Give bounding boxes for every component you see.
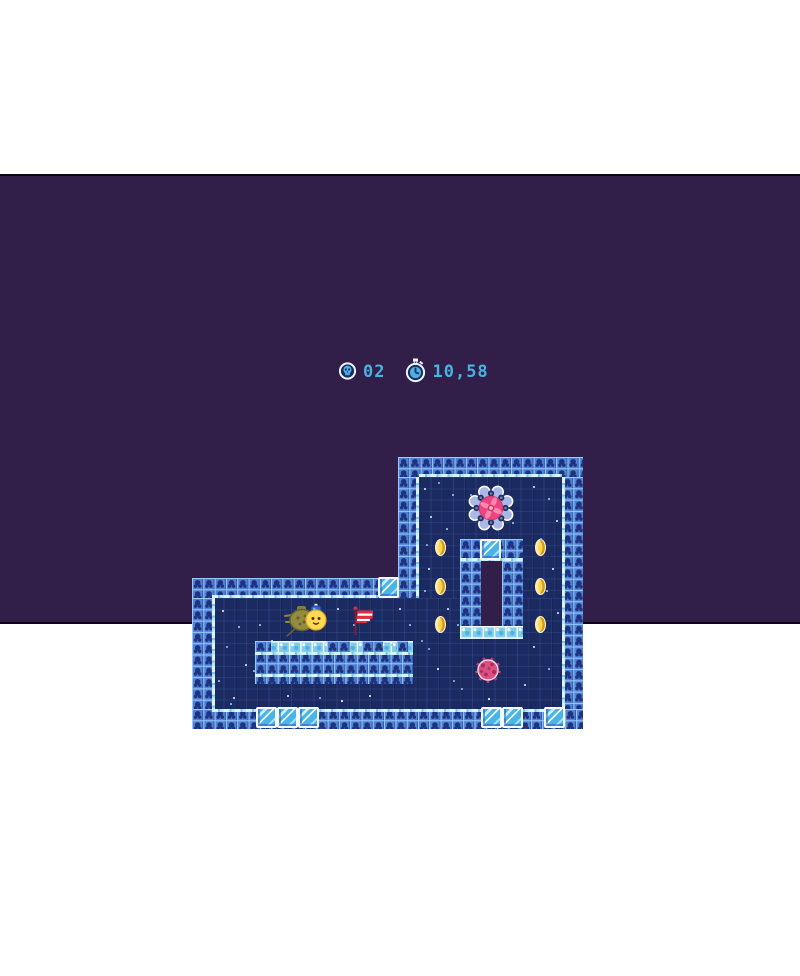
- interior-region: [212, 598, 562, 709]
- platform-tile-patch: [327, 641, 350, 653]
- snow-particle: [230, 703, 232, 705]
- snow-particle: [470, 494, 472, 496]
- afterimage: [290, 606, 314, 631]
- surface-cap: [419, 474, 562, 477]
- surface-cap: [255, 674, 413, 677]
- surface-cap: [416, 477, 419, 598]
- wall-segment: [562, 477, 583, 709]
- coin: [435, 616, 446, 633]
- snow-particle: [428, 568, 430, 570]
- snow-particle: [546, 590, 548, 592]
- snow-particle: [438, 482, 440, 484]
- snow-particle: [556, 520, 558, 522]
- platform-tile-patch: [255, 641, 271, 653]
- snow-particle: [353, 624, 355, 626]
- snow-particle: [524, 684, 526, 686]
- player-character: [283, 597, 339, 639]
- snow-particle: [218, 680, 220, 682]
- wall-segment: [192, 578, 378, 598]
- surface-cap: [212, 598, 215, 709]
- snow-particle: [222, 610, 224, 612]
- hud: 02 10,58: [338, 358, 489, 384]
- coin: [435, 578, 446, 595]
- wall-segment: [192, 709, 583, 729]
- snow-particle: [238, 626, 240, 628]
- snow-particle: [461, 688, 463, 690]
- snow-particle: [453, 680, 455, 682]
- snow-particle: [271, 640, 273, 642]
- snow-particle: [424, 590, 426, 592]
- pinwheel-enemy: [467, 484, 515, 532]
- skull-icon: [338, 361, 357, 381]
- timer-value: 10,58: [432, 364, 488, 381]
- snow-particle: [428, 648, 430, 650]
- snow-particle: [446, 528, 448, 530]
- ice-block: [481, 707, 502, 728]
- snow-particle: [488, 698, 490, 700]
- surface-cap: [255, 652, 413, 655]
- coin: [535, 616, 546, 633]
- snow-particle: [226, 646, 228, 648]
- game-viewport[interactable]: 02 10,58: [0, 174, 800, 624]
- snow-particle: [337, 608, 339, 610]
- snow-particle: [253, 670, 255, 672]
- icy-tile-row: [255, 641, 413, 653]
- snow-particle: [533, 646, 535, 648]
- ice-block: [298, 707, 319, 728]
- ice-block: [256, 707, 277, 728]
- snow-particle: [369, 695, 371, 697]
- snow-particle: [426, 544, 428, 546]
- structure-hole: [481, 561, 502, 626]
- snow-particle: [421, 640, 423, 642]
- snow-particle: [452, 494, 454, 496]
- platform-tile-patch: [397, 641, 408, 653]
- coin: [435, 539, 446, 556]
- platform-tile-patch: [362, 641, 383, 653]
- snow-particle: [548, 668, 550, 670]
- motion-streaks: [285, 615, 292, 622]
- checkpoint-flag: [348, 604, 380, 640]
- snow-particle: [540, 538, 542, 540]
- snow-particle: [437, 668, 439, 670]
- wall-segment: [460, 561, 481, 626]
- level: [0, 176, 800, 976]
- snow-particle: [245, 664, 247, 666]
- surface-cap: [460, 558, 523, 561]
- snow-particle: [552, 568, 554, 570]
- snow-particle: [548, 498, 550, 500]
- snow-particle: [409, 624, 411, 626]
- wall-segment: [192, 598, 212, 709]
- snow-particle: [259, 624, 261, 626]
- stopwatch-icon: [405, 358, 426, 384]
- ice-block: [480, 539, 501, 560]
- interior-region: [419, 477, 562, 709]
- surface-cap: [562, 477, 565, 709]
- surface-cap: [212, 595, 378, 598]
- wall-segment: [460, 539, 523, 561]
- snow-particle: [533, 486, 535, 488]
- ice-block: [502, 707, 523, 728]
- snow-particle: [424, 488, 426, 490]
- coin: [535, 539, 546, 556]
- death-counter: 02: [363, 364, 385, 381]
- snow-particle: [447, 608, 449, 610]
- urchin-enemy: [472, 654, 504, 686]
- ice-block: [544, 707, 565, 728]
- ice-block: [378, 577, 399, 598]
- snow-particle: [399, 608, 401, 610]
- wall-segment: [398, 477, 419, 598]
- snow-particle: [512, 522, 514, 524]
- coin: [535, 578, 546, 595]
- snow-particle: [557, 612, 559, 614]
- snow-particle: [305, 644, 307, 646]
- surface-cap: [212, 709, 562, 712]
- snow-particle: [430, 516, 432, 518]
- snow-particle: [319, 697, 321, 699]
- icy-tile-row: [460, 626, 523, 639]
- snow-particle: [341, 700, 343, 702]
- wall-segment: [398, 457, 583, 477]
- snow-particle: [233, 697, 235, 699]
- snow-particle: [391, 644, 393, 646]
- player-body: [306, 604, 326, 630]
- snow-particle: [457, 624, 459, 626]
- wall-segment: [255, 652, 413, 684]
- snow-particle: [287, 695, 289, 697]
- wall-segment: [502, 561, 523, 626]
- ice-block: [277, 707, 298, 728]
